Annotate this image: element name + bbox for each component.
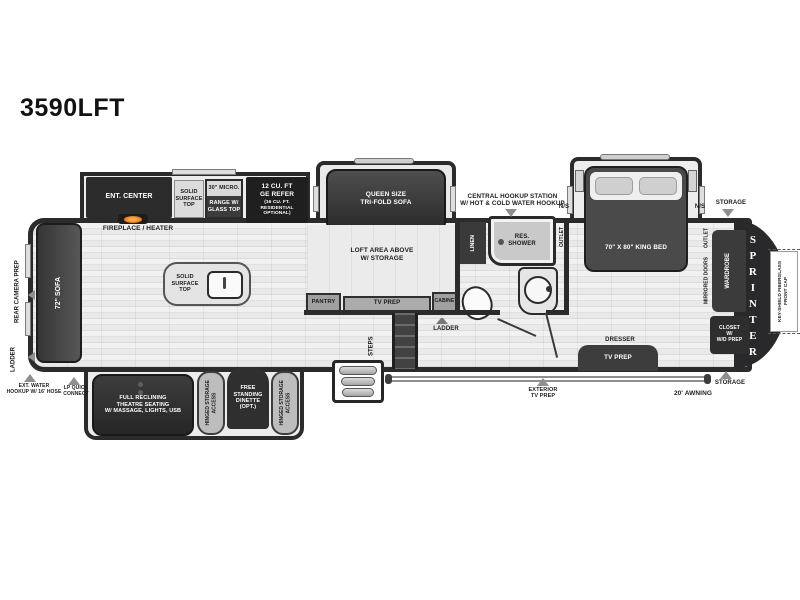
central-hookup-arrow-icon bbox=[505, 209, 517, 217]
wall bbox=[546, 310, 569, 315]
hinged-storage-left-label: HINGED STORAGE ACCESS bbox=[205, 380, 218, 425]
closet: CLOSET W/ W/D PREP bbox=[710, 316, 749, 354]
loft-ladder-icon bbox=[436, 318, 448, 324]
shower-head-icon bbox=[498, 239, 504, 245]
awning-label: 20' AWNING bbox=[664, 390, 722, 398]
bedroom-tv-prep: TV PREP bbox=[578, 345, 658, 371]
range-label: RANGE W/ GLASS TOP bbox=[208, 200, 241, 213]
wall bbox=[304, 310, 460, 315]
pillow bbox=[595, 177, 633, 195]
galley-counter: SOLID SURFACE TOP bbox=[174, 180, 204, 218]
theatre-seating-label: FULL RECLINING THEATRE SEATING W/ MASSAG… bbox=[105, 395, 181, 414]
rear-ladder-arrow-icon bbox=[28, 352, 35, 362]
queen-slide-window-left bbox=[313, 186, 319, 212]
page-title: 3590LFT bbox=[20, 94, 125, 123]
shower-label: RES. SHOWER bbox=[508, 234, 536, 248]
storage-bottom-label: STORAGE bbox=[710, 380, 750, 387]
king-bed: 70" X 80" KING BED bbox=[584, 166, 688, 272]
storage-bottom-arrow-icon bbox=[720, 371, 732, 379]
hinged-storage-left: HINGED STORAGE ACCESS bbox=[197, 371, 225, 435]
loft-ladder-label: LADDER bbox=[422, 326, 470, 333]
pillow bbox=[639, 177, 677, 195]
loft-stairs bbox=[392, 313, 418, 369]
nightstand-right-label: N/S bbox=[692, 204, 708, 211]
hinged-storage-right-label: HINGED STORAGE ACCESS bbox=[279, 380, 292, 425]
theatre-seating: FULL RECLINING THEATRE SEATING W/ MASSAG… bbox=[92, 374, 194, 436]
rear-camera-arrow-icon bbox=[28, 290, 35, 300]
kitchen-island: SOLID SURFACE TOP bbox=[163, 262, 251, 306]
exterior-tv-prep-label: EXTERIOR TV PREP bbox=[520, 387, 566, 400]
island-label: SOLID SURFACE TOP bbox=[165, 274, 205, 293]
dinette: FREE STANDING DINETTE (OPT.) bbox=[227, 367, 269, 429]
loft-tv-prep-label: TV PREP bbox=[374, 300, 400, 307]
step-tread bbox=[342, 388, 374, 397]
queen-trifold-sofa: QUEEN SIZE TRI-FOLD SOFA bbox=[326, 169, 446, 228]
storage-top-arrow-icon bbox=[722, 209, 734, 217]
rear-sofa-label: 72" SOFA bbox=[55, 277, 64, 309]
exterior-tv-arrow-icon bbox=[537, 378, 549, 386]
dresser-label: DRESSER bbox=[596, 337, 644, 344]
entertainment-center: ENT. CENTER bbox=[86, 177, 172, 218]
wall bbox=[564, 222, 569, 312]
closet-label: CLOSET W/ W/D PREP bbox=[717, 326, 743, 344]
dinette-label: FREE STANDING DINETTE (OPT.) bbox=[233, 385, 262, 411]
wall bbox=[460, 310, 500, 315]
bedroom-tv-prep-label: TV PREP bbox=[604, 354, 632, 361]
microwave-label: 30" MICRO. bbox=[208, 185, 239, 191]
rear-ladder-label: LADDER bbox=[8, 342, 20, 378]
ext-water-arrow-icon bbox=[24, 374, 36, 382]
floor-plan: 3590LFT SPRINTER KEY-SHIELD FIBERGLASS F… bbox=[0, 0, 800, 600]
cabinet-label: CABINET bbox=[435, 299, 458, 305]
king-bed-label: 70" X 80" KING BED bbox=[586, 244, 686, 251]
cap-dash-top bbox=[768, 249, 800, 250]
kitchen-window bbox=[172, 169, 236, 175]
cap-dash-bottom bbox=[768, 333, 800, 334]
linen-cabinet: LINEN bbox=[460, 222, 486, 264]
lp-quick-connect-label: LP QUICK CONNECT bbox=[56, 386, 96, 398]
nightstand-left bbox=[575, 170, 584, 192]
bedroom-outlet-label: OUTLET bbox=[701, 222, 712, 254]
rear-window-bottom bbox=[25, 302, 31, 336]
nightstand-right bbox=[688, 170, 697, 192]
refrigerator: 12 CU. FT GE REFER (16 CU. FT. RESIDENTI… bbox=[246, 177, 308, 223]
headrest-dot bbox=[138, 390, 143, 395]
awning-end-cap bbox=[385, 374, 392, 384]
step-tread bbox=[339, 366, 377, 375]
loft-area-label: LOFT AREA ABOVE W/ STORAGE bbox=[320, 247, 444, 262]
island-faucet-icon bbox=[223, 277, 226, 289]
micro-range-unit: 30" MICRO. RANGE W/ GLASS TOP bbox=[205, 179, 243, 219]
shower: RES. SHOWER bbox=[488, 216, 556, 266]
fireplace-flame-icon bbox=[124, 216, 142, 223]
queen-sofa-label: QUEEN SIZE TRI-FOLD SOFA bbox=[360, 191, 411, 206]
pantry-label: PANTRY bbox=[312, 299, 336, 306]
step-tread bbox=[341, 377, 376, 386]
nightstand-left-label: N/S bbox=[556, 204, 572, 211]
storage-top-label: STORAGE bbox=[712, 200, 750, 207]
king-slide-window bbox=[600, 154, 670, 160]
wardrobe: WARDROBE bbox=[712, 230, 746, 312]
ext-water-label: EXT. WATER HOOKUP W/ 16' HOSE bbox=[4, 384, 64, 396]
headrest-dot bbox=[138, 382, 143, 387]
rear-window-top bbox=[25, 244, 31, 278]
linen-label: LINEN bbox=[470, 235, 477, 252]
fireplace-label: FIREPLACE / HEATER bbox=[92, 225, 184, 233]
refrigerator-label: 12 CU. FT GE REFER bbox=[260, 183, 294, 198]
galley-counter-label: SOLID SURFACE TOP bbox=[176, 189, 203, 208]
hinged-storage-right: HINGED STORAGE ACCESS bbox=[271, 371, 299, 435]
bath-faucet-icon bbox=[546, 286, 552, 292]
front-cap-label: KEY-SHIELD FIBERGLASS FRONT CAP bbox=[770, 251, 798, 332]
rear-sofa: 72" SOFA bbox=[36, 223, 82, 363]
steps-label: STEPS bbox=[366, 330, 378, 362]
ent-center-label: ENT. CENTER bbox=[106, 193, 153, 201]
queen-slide-window bbox=[354, 158, 414, 164]
entry-steps bbox=[332, 360, 384, 403]
lp-quick-arrow-icon bbox=[68, 377, 80, 385]
refrigerator-note: (16 CU. FT. RESIDENTIAL OPTIONAL) bbox=[260, 200, 293, 217]
mirrored-doors-label: MIRRORED DOORS bbox=[701, 254, 712, 308]
wardrobe-label: WARDROBE bbox=[725, 253, 733, 289]
rear-camera-prep-label: REAR CAMERA PREP bbox=[12, 250, 24, 334]
